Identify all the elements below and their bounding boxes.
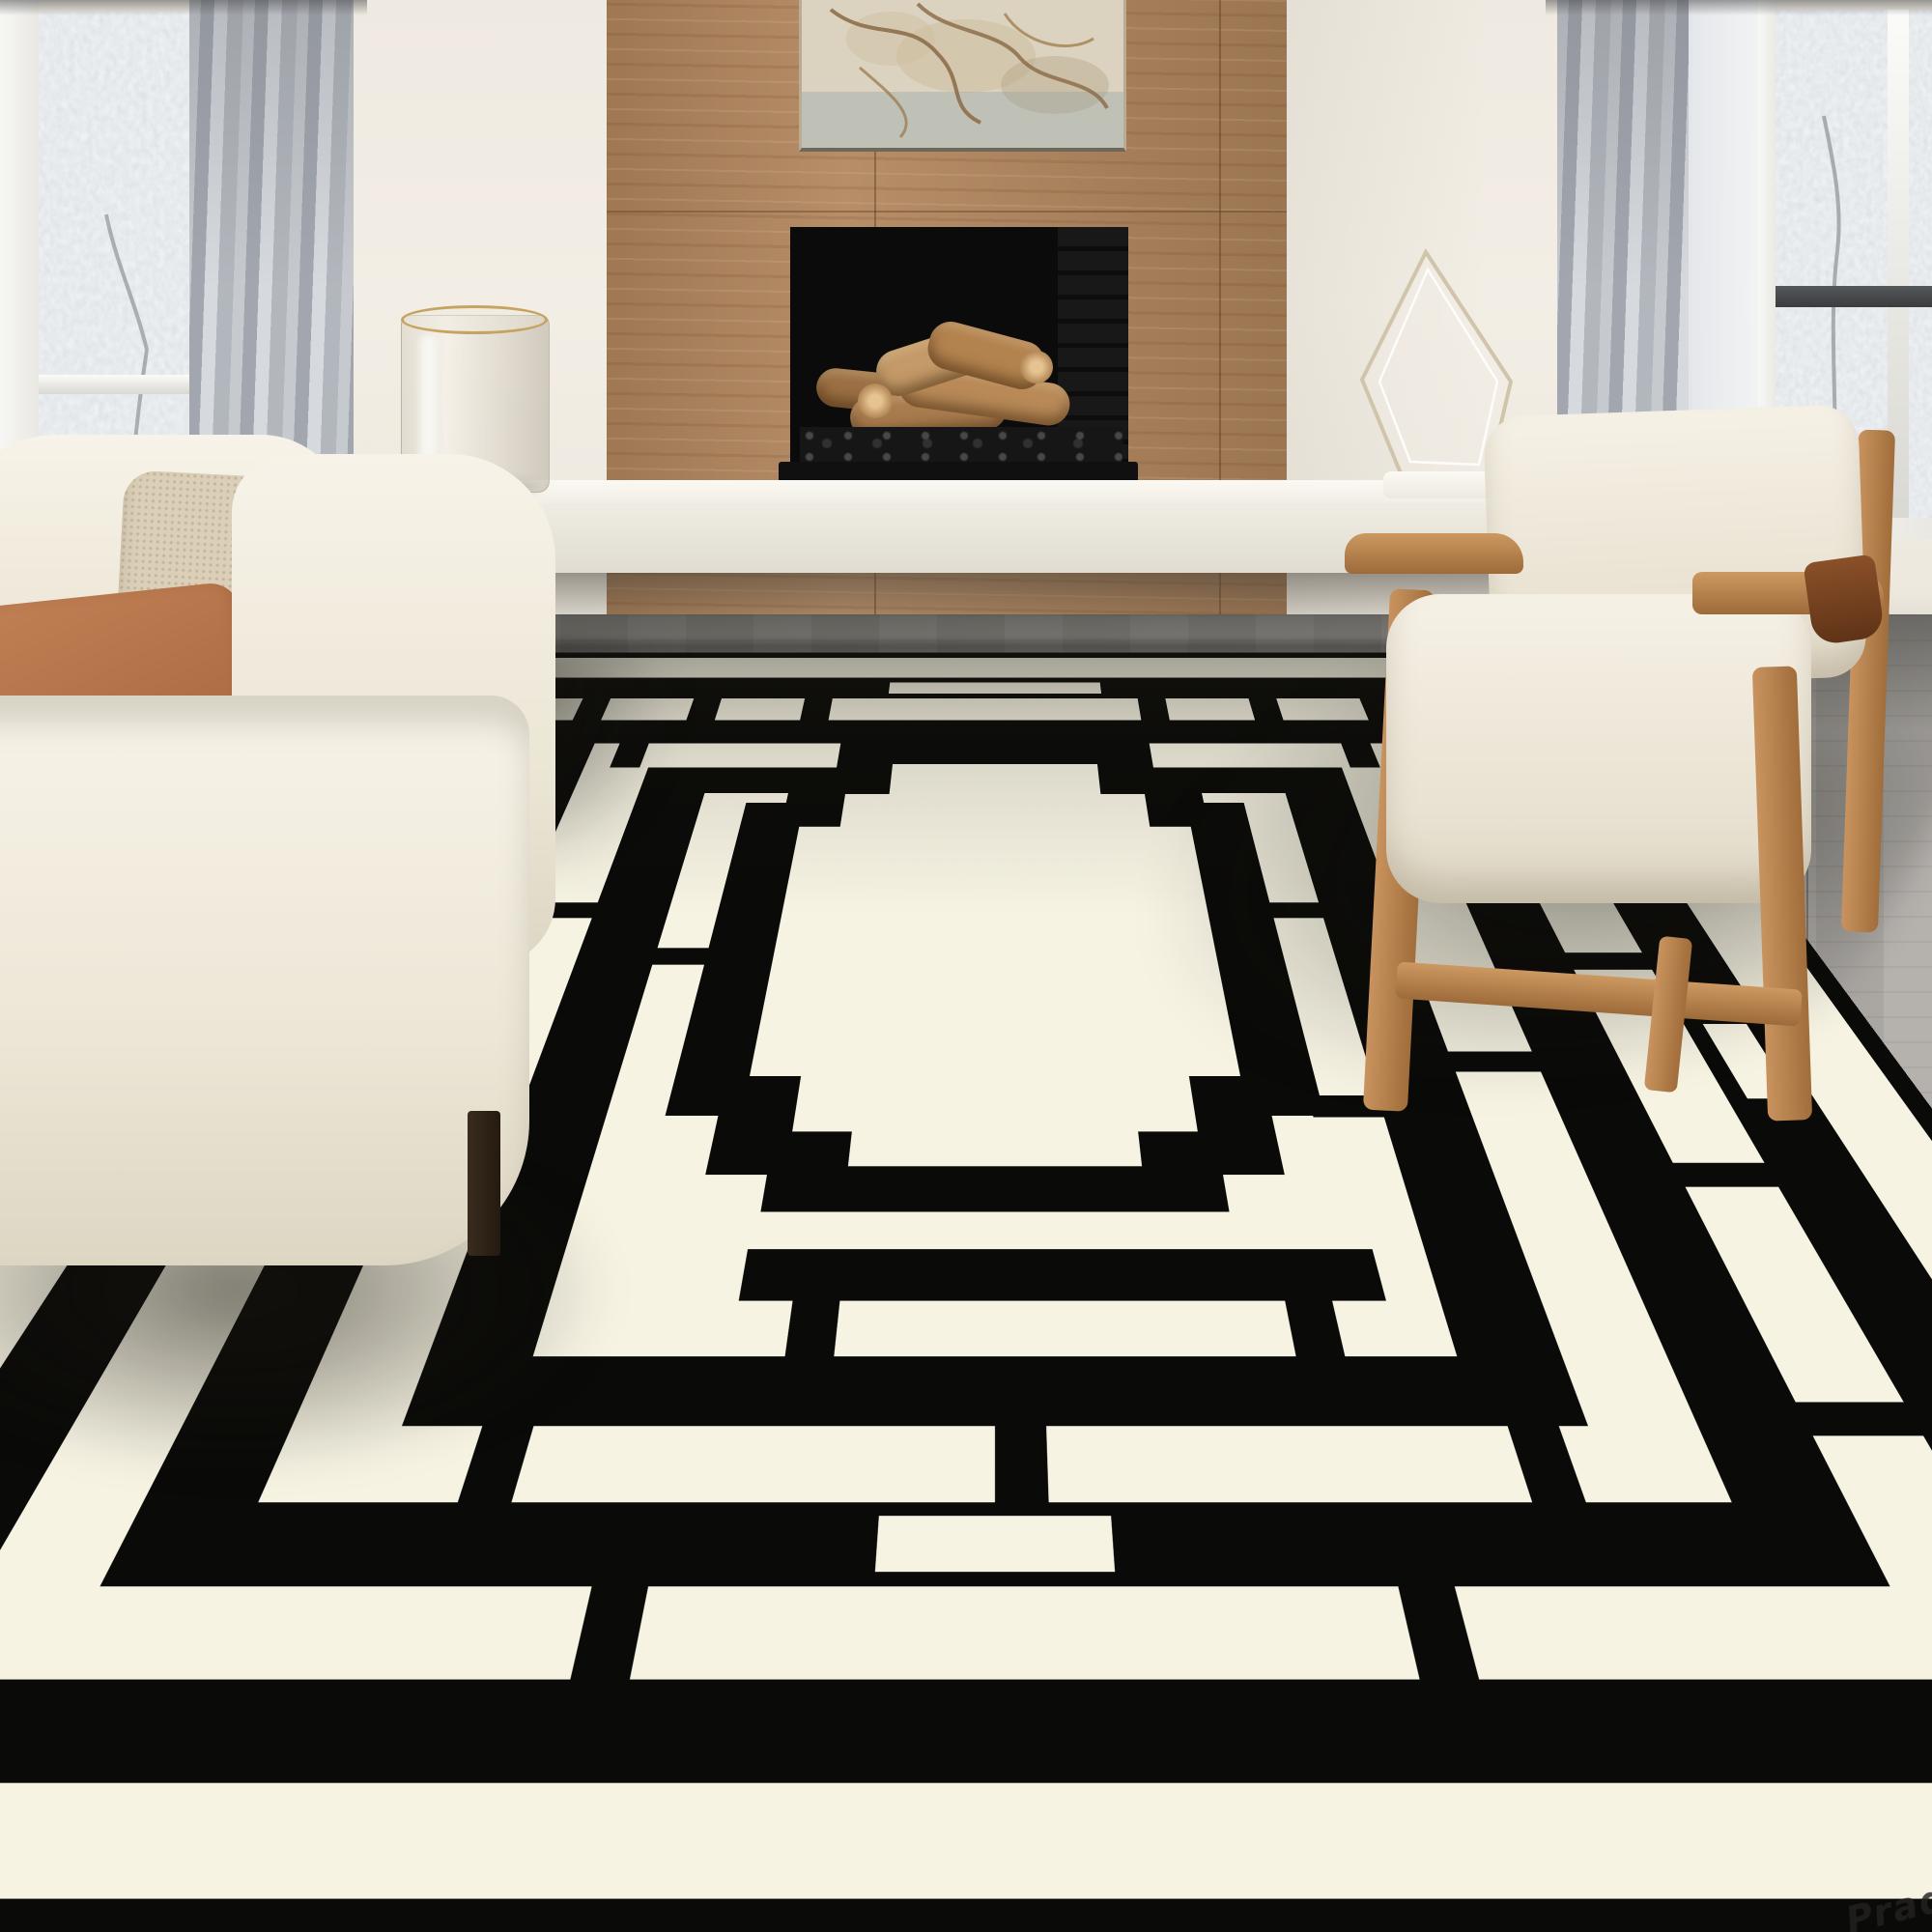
log-end-2 [1020, 351, 1053, 384]
vase-gold-rim [401, 305, 548, 334]
sofa-seat [0, 696, 529, 1265]
armchair-seat-cushion [1386, 594, 1811, 903]
armchair [1333, 396, 1932, 1159]
window-right-sash-bar [1776, 286, 1932, 307]
artwork-canvas [802, 0, 1123, 148]
living-room-photo: Prad [0, 0, 1932, 1932]
armchair-leather-strap [1803, 554, 1885, 645]
sofa [0, 406, 580, 1275]
armchair-stretcher [1395, 961, 1803, 1026]
firebox-bricks [1058, 227, 1128, 459]
curtain-rod-shadow-left [0, 0, 367, 15]
sofa-leg [468, 1111, 500, 1256]
armchair-left-armrest [1345, 533, 1523, 574]
abstract-artwork [799, 0, 1126, 152]
log-end-1 [858, 384, 893, 418]
curtain-rod-shadow-right [1546, 0, 1932, 15]
wood-seam-3 [607, 211, 1287, 213]
fire-pebbles [800, 427, 1122, 466]
firebox [790, 227, 1128, 488]
window-left-mullion [39, 375, 203, 394]
